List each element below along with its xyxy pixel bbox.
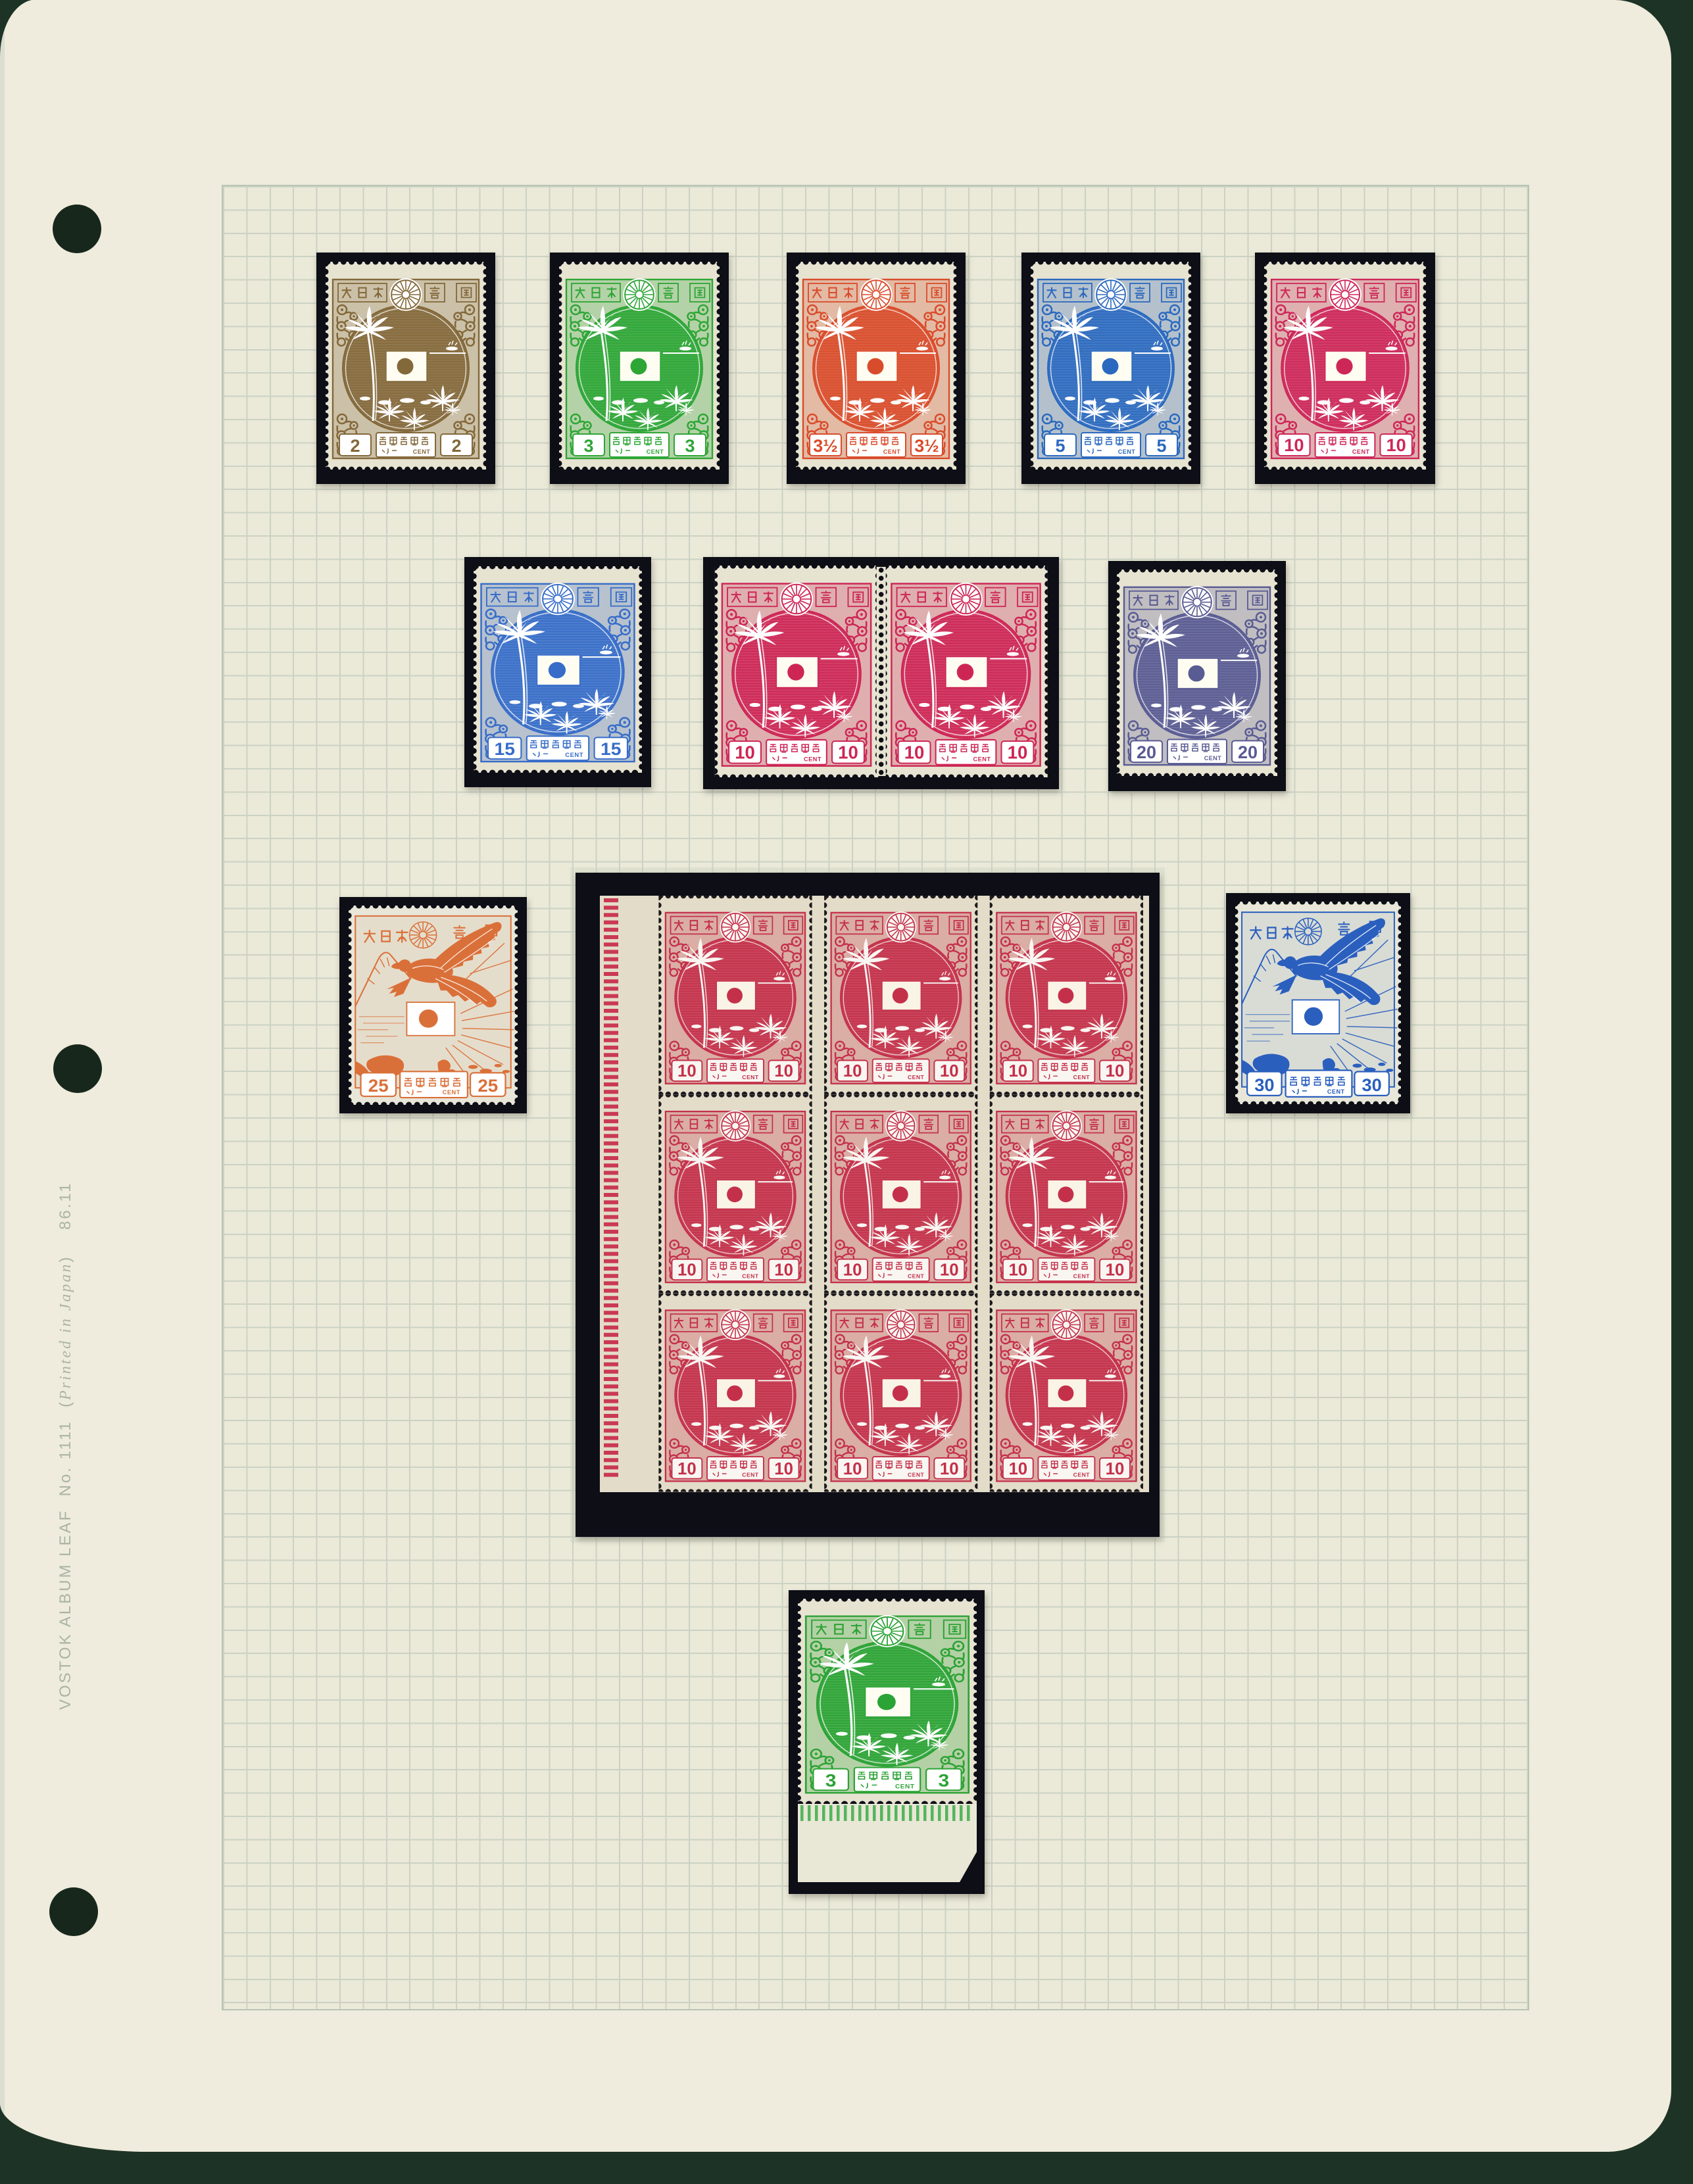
svg-text:3: 3 — [583, 436, 593, 456]
svg-text:3½: 3½ — [914, 436, 939, 456]
svg-text:15: 15 — [494, 739, 515, 759]
svg-text:25: 25 — [368, 1076, 389, 1096]
svg-text:15: 15 — [601, 739, 622, 759]
svg-text:3: 3 — [825, 1771, 837, 1791]
svg-text:20: 20 — [1238, 742, 1258, 762]
svg-text:3½: 3½ — [813, 436, 838, 456]
svg-text:30: 30 — [1362, 1075, 1382, 1095]
svg-text:20: 20 — [1137, 742, 1156, 762]
svg-text:5: 5 — [1055, 436, 1065, 456]
svg-text:2: 2 — [350, 436, 360, 456]
svg-text:30: 30 — [1254, 1075, 1274, 1095]
svg-text:3: 3 — [938, 1771, 949, 1791]
svg-text:25: 25 — [478, 1076, 498, 1096]
svg-text:5: 5 — [1156, 436, 1166, 456]
svg-text:2: 2 — [451, 436, 461, 456]
svg-text:3: 3 — [685, 436, 695, 456]
